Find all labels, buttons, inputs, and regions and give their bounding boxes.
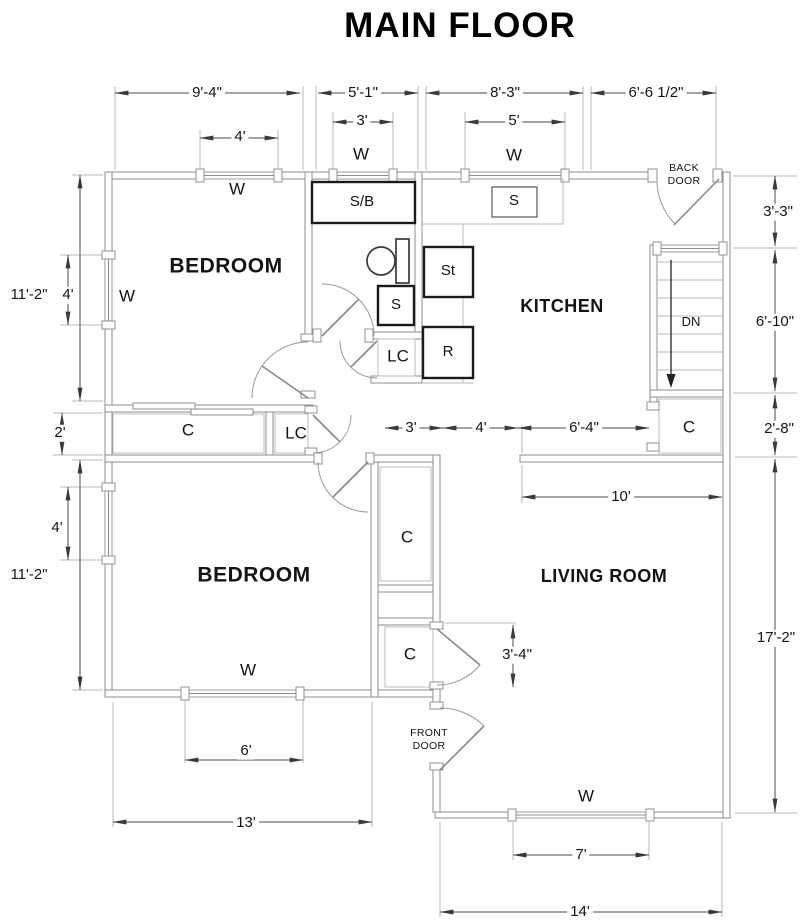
linen-closet-label-bath: LC bbox=[387, 348, 409, 367]
entry-closet-door-panel bbox=[437, 629, 480, 665]
stairs-dn-label: DN bbox=[682, 315, 701, 329]
dim-left-bedroom2-window: 4' bbox=[48, 520, 65, 537]
dim-middle-hall-a: 3' bbox=[402, 420, 419, 437]
dim-bottom-living-width: 14' bbox=[567, 904, 593, 921]
toilet-bowl bbox=[367, 247, 395, 275]
closet-label-under-stairs: C bbox=[683, 419, 695, 438]
dim-left-bedroom2-depth: 11'-2" bbox=[7, 567, 50, 584]
dim-top-bedroom-width: 9'-4" bbox=[189, 85, 225, 102]
window-label-kitchen-top: W bbox=[506, 147, 522, 166]
bedroom2-door-panel bbox=[333, 462, 368, 497]
room-label-bedroom1: BEDROOM bbox=[169, 254, 282, 277]
dim-right-landing-depth: 3'-3" bbox=[760, 204, 796, 221]
dim-top-kitchen-width: 8'-3" bbox=[487, 85, 523, 102]
dim-right-closet-depth: 2'-8" bbox=[761, 421, 797, 438]
room-label-living-room: LIVING ROOM bbox=[541, 567, 668, 587]
dim-top-bedroom-window: 4' bbox=[231, 129, 248, 146]
dim-left-bedroom1-window: 4' bbox=[59, 287, 76, 304]
page-title: MAIN FLOOR bbox=[344, 7, 576, 46]
back-door-label: BACK DOOR bbox=[659, 162, 709, 188]
dim-middle-living-width: 10' bbox=[608, 489, 634, 506]
dim-left-bedroom1-depth: 11'-2" bbox=[7, 287, 50, 304]
bath-linen-closet-door-panel bbox=[351, 341, 377, 367]
linen-closet-label-hall: LC bbox=[285, 425, 307, 444]
closet-label-bedroom2: C bbox=[401, 529, 413, 548]
fixture-label-kitchen-sink: S bbox=[509, 193, 519, 210]
window-label-bedroom2-bottom: W bbox=[240, 662, 256, 681]
dim-bottom-bedroom2-window: 6' bbox=[237, 743, 254, 760]
dim-left-closet-depth: 2' bbox=[51, 425, 68, 442]
window-label-living-bottom: W bbox=[578, 788, 594, 807]
window-label-bedroom1-left: W bbox=[119, 288, 135, 307]
dim-middle-kitchen-opening: 6'-4" bbox=[566, 420, 602, 437]
fixture-label-refrigerator: R bbox=[443, 344, 454, 361]
fixture-label-stove: St bbox=[441, 263, 455, 280]
dim-middle-hall-b: 4' bbox=[472, 420, 489, 437]
fixture-label-bath-sink: S bbox=[391, 297, 401, 314]
bathroom-door-panel bbox=[322, 299, 359, 336]
dim-right-stairs-depth: 6'-10" bbox=[753, 314, 797, 331]
witness-lines bbox=[53, 86, 797, 917]
dim-top-kitchen-window: 5' bbox=[505, 113, 522, 130]
dim-bottom-bedroom2-width: 13' bbox=[233, 815, 259, 832]
room-label-bedroom2: BEDROOM bbox=[197, 563, 310, 586]
toilet-tank bbox=[396, 239, 409, 283]
stairs-down-arrow bbox=[667, 260, 676, 388]
floor-plan-drawing bbox=[0, 0, 803, 923]
dim-top-bath-window: 3' bbox=[353, 113, 370, 130]
dim-right-living-depth: 17'-2" bbox=[754, 630, 798, 647]
closet-label-hall: C bbox=[182, 422, 194, 441]
closet-label-entry: C bbox=[404, 646, 416, 665]
dim-bottom-living-window: 7' bbox=[572, 847, 589, 864]
window-label-bedroom1-top: W bbox=[229, 181, 245, 200]
window-label-bath-top: W bbox=[353, 146, 369, 165]
front-door-label: FRONT DOOR bbox=[404, 727, 454, 753]
fixture-label-shower-bath: S/B bbox=[350, 194, 374, 211]
floor-plan: MAIN FLOOR BEDROOM BEDROOM KITCHEN LIVIN… bbox=[0, 0, 803, 923]
closets bbox=[113, 339, 721, 687]
hall-linen-closet-door-panel bbox=[313, 415, 340, 442]
dim-top-bath-width: 5'-1" bbox=[345, 85, 381, 102]
room-label-kitchen: KITCHEN bbox=[520, 297, 604, 317]
dim-middle-entry-closet: 3'-4" bbox=[499, 647, 535, 664]
bedroom1-door-panel bbox=[262, 366, 308, 398]
dim-top-entry-width: 6'-6 1/2" bbox=[626, 85, 687, 102]
